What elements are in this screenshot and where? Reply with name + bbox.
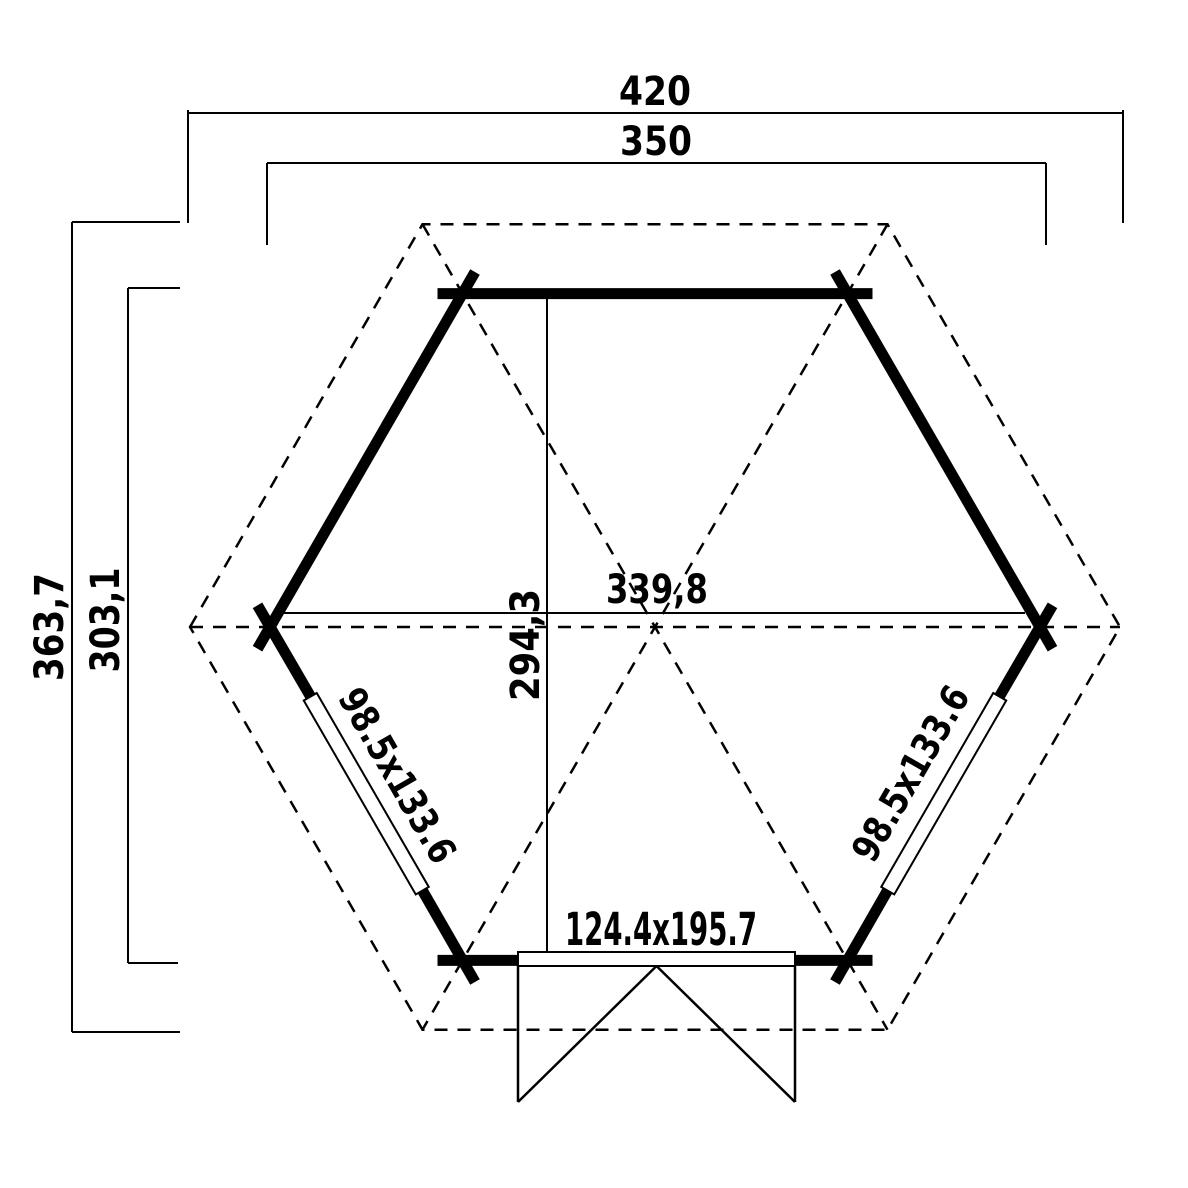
dim-inner-depth-label: 294,3: [503, 589, 549, 701]
dim-roof-width-label: 420: [619, 69, 691, 115]
dim-wall-depth-label: 303,1: [83, 568, 129, 673]
dim-roof-depth-label: 363,7: [27, 573, 73, 681]
dim-inner-width-label: 339,8: [606, 567, 708, 613]
door-size-label: 124.4x195.7: [565, 903, 757, 956]
gazebo-floor-plan: 420 350 363,7 303,1 339,8 294,3 98.5x133…: [0, 0, 1188, 1188]
floor-plan-canvas: 420 350 363,7 303,1 339,8 294,3 98.5x133…: [0, 0, 1188, 1188]
drawing-background: [0, 0, 1188, 1188]
dim-wall-width-label: 350: [620, 119, 692, 165]
